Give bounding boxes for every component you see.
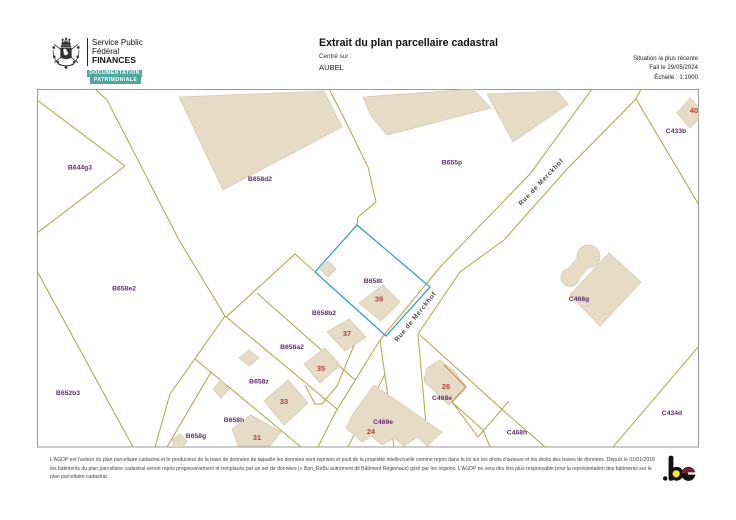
svg-text:B658e2: B658e2 <box>112 286 136 293</box>
svg-text:B658z: B658z <box>249 379 269 386</box>
svg-text:40: 40 <box>690 106 698 115</box>
svg-text:B658t: B658t <box>364 278 383 285</box>
svg-text:C468h: C468h <box>507 430 527 437</box>
svg-text:B658g: B658g <box>186 433 206 440</box>
svg-text:B658d2: B658d2 <box>248 176 272 183</box>
svg-text:B658a2: B658a2 <box>280 344 304 351</box>
svg-text:26: 26 <box>442 382 450 391</box>
svg-text:C468e: C468e <box>432 395 452 402</box>
svg-text:35: 35 <box>317 364 325 373</box>
svg-text:C469e: C469e <box>373 419 393 426</box>
svg-text:39: 39 <box>375 295 383 304</box>
svg-text:B658b2: B658b2 <box>312 310 336 317</box>
svg-text:C468g: C468g <box>569 296 589 303</box>
svg-text:C433b: C433b <box>666 128 686 135</box>
svg-text:C434d: C434d <box>662 410 682 417</box>
svg-text:33: 33 <box>280 397 288 406</box>
svg-text:B655p: B655p <box>442 160 462 167</box>
svg-text:31: 31 <box>253 433 261 442</box>
svg-text:B644g3: B644g3 <box>68 165 92 172</box>
svg-text:24: 24 <box>367 427 376 436</box>
svg-text:B652b3: B652b3 <box>56 390 80 397</box>
svg-text:B658h: B658h <box>224 417 244 424</box>
svg-text:37: 37 <box>343 329 351 338</box>
